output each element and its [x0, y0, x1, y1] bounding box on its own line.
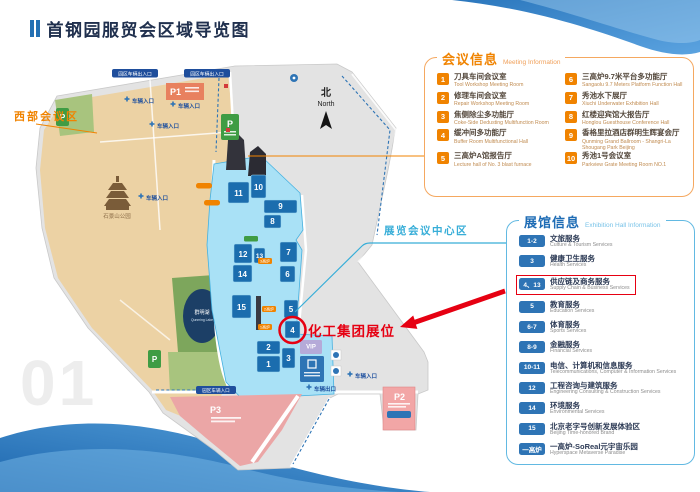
hall-item: 3健康卫生服务Health Services [519, 254, 686, 269]
furnace-2-badge: 2高炉 [264, 306, 274, 312]
meeting-item: 4缓冲间多功能厅Buffer Room Multifunctional Hall [437, 128, 557, 151]
parking-p3-label: P3 [210, 405, 221, 415]
hall-item-text: 健康卫生服务Health Services [550, 254, 595, 269]
meeting-item-en: Qunming Grand Ballroom - Shangri-La Shou… [582, 139, 685, 151]
parking-p2-label: P2 [394, 392, 405, 402]
hall-15: 15 [237, 303, 246, 312]
meeting-item-zh: 缓冲间多功能厅 [454, 128, 528, 137]
meeting-item-number: 7 [565, 92, 577, 104]
meeting-info-title-zh: 会议信息 [442, 49, 498, 68]
lake-label-zh: 群明湖 [194, 309, 209, 316]
hall-14: 14 [238, 270, 247, 279]
page-title: 首钢园服贸会区域导览图 [30, 16, 250, 41]
meeting-item-zh: 三高炉A馆报告厅 [454, 151, 532, 160]
hall-item-en: Telecommunications, Computer & Informati… [550, 370, 676, 376]
gate-inout-label: 园区车辆出入口 [118, 70, 152, 77]
meeting-item: 7秀池水下展厅Xiuchi Underwater Exhibition Hall [565, 91, 685, 110]
hall-item-badge: 4、13 [519, 278, 545, 290]
hall-item: 14环境服务Environmental Services [519, 401, 686, 416]
hall-item-text: 北京老字号创新发展体验区Beijing Time-honored Brand [550, 422, 640, 437]
parking-p1-label: P1 [170, 87, 181, 97]
vehicle-out-label: 车辆出口 [314, 385, 336, 393]
gate-in-label: 园区车辆入口 [202, 387, 230, 394]
hall-info-title: 展馆信息 Exhibition Hall Information [519, 212, 666, 231]
gate-inout-label: 园区车辆出入口 [190, 70, 224, 77]
hall-item-badge: 3 [519, 255, 545, 267]
hall-9: 9 [278, 202, 283, 211]
hall-10: 10 [254, 183, 263, 192]
meeting-item-text: 刀具车间会议室Tool Workshop Meeting Room [454, 72, 523, 89]
meeting-item: 8红楼迎宾馆大报告厅Honglou Guesthouse Conference … [565, 110, 685, 129]
parking-p-label: P [152, 355, 158, 364]
meeting-item-en: Coke-Side Dedusting Multifunction Room [454, 120, 549, 126]
meeting-item-zh: 香格里拉酒店群明生辉宴会厅 [582, 128, 685, 137]
meeting-item-en: Tool Workshop Meeting Room [454, 82, 523, 88]
meeting-item-number: 1 [437, 73, 449, 85]
vehicle-in-label: 车辆入口 [146, 194, 168, 202]
hall-item-text: 教育服务Education Services [550, 300, 594, 315]
hall-item: 6-7体育服务Sports Services [519, 320, 686, 335]
meeting-item-text: 三高炉A馆报告厅Lecture hall of No. 3 blast furn… [454, 151, 532, 168]
hall-item-en: Culture & Tourism Services [550, 243, 612, 249]
parking-p1-area: P1 [166, 83, 204, 100]
booth-annotation-arrow [400, 289, 506, 329]
park-label: 石景山公园 [103, 212, 131, 220]
booth-annotation-label: 化工集团展位 [308, 323, 395, 339]
hall-8: 8 [270, 217, 275, 226]
meeting-item-en: Honglou Guesthouse Conference Hall [582, 120, 669, 126]
hall-item-badge: 一高炉 [519, 443, 545, 455]
meeting-info-panel: 会议信息 Meeting Information 1刀具车间会议室Tool Wo… [424, 57, 694, 197]
vehicle-in-label: 车辆入口 [178, 102, 200, 110]
hall-item: 1-2文旅服务Culture & Tourism Services [519, 234, 686, 249]
meeting-item: 2修理车间会议室Repair Workshop Meeting Room [437, 91, 557, 110]
hall-2: 2 [266, 343, 271, 352]
meeting-item-text: 秀池水下展厅Xiuchi Underwater Exhibition Hall [582, 91, 659, 108]
compass-en: North [317, 101, 334, 108]
meeting-item-number: 10 [565, 152, 577, 164]
meeting-item: 5三高炉A馆报告厅Lecture hall of No. 3 blast fur… [437, 151, 557, 170]
hall-item-badge: 12 [519, 382, 545, 394]
media-center-box [300, 356, 324, 382]
hall-7: 7 [286, 248, 291, 257]
hall-item-badge: 5 [519, 301, 545, 313]
meeting-item-en: Lecture hall of No. 3 blast furnace [454, 162, 532, 168]
meeting-item-en: Repair Workshop Meeting Room [454, 101, 529, 107]
hall-item-text: 工程咨询与建筑服务Engineering Consulting & Constr… [550, 381, 660, 396]
vehicle-in-label: 车辆入口 [157, 122, 179, 130]
meeting-item: 9香格里拉酒店群明生辉宴会厅Qunming Grand Ballroom - S… [565, 128, 685, 151]
hall-item-text: 体育服务Sports Services [550, 320, 586, 335]
hall-3: 3 [286, 354, 291, 363]
hall-item-badge: 14 [519, 402, 545, 414]
vehicle-in-label: 车辆入口 [355, 372, 377, 380]
hall-5: 5 [289, 305, 294, 314]
hall-item: 5教育服务Education Services [519, 300, 686, 315]
hall-item-text: 电信、计算机和信息服务Telecommunications, Computer … [550, 361, 676, 376]
hall-item-highlighted: 4、13供应链及商务服务Supply Chain & Business Serv… [516, 275, 636, 295]
meeting-item: 1刀具车间会议室Tool Workshop Meeting Room [437, 72, 557, 91]
meeting-item-zh: 红楼迎宾馆大报告厅 [582, 110, 669, 119]
hall-item-en: Health Services [550, 263, 595, 269]
west-area-label: 西部会议区 [14, 109, 79, 123]
hall-item-badge: 8-9 [519, 341, 545, 353]
meeting-item-zh: 焦侧除尘多功能厅 [454, 110, 549, 119]
hall-item-en: Environmental Services [550, 410, 605, 416]
hall-12: 12 [239, 250, 248, 259]
hall-item-badge: 1-2 [519, 235, 545, 247]
hall-item-text: 金融服务Financial Services [550, 340, 592, 355]
hall-item-en: Education Services [550, 309, 594, 315]
hall-item-en: Engineering Consulting & Construction Se… [550, 390, 660, 396]
hall-item-en: Financial Services [550, 349, 592, 355]
meeting-item: 10秀池1号会议室Parkview Grate Meeting Room NO.… [565, 151, 685, 170]
meeting-item-text: 香格里拉酒店群明生辉宴会厅Qunming Grand Ballroom - Sh… [582, 128, 685, 151]
meeting-info-title-en: Meeting Information [503, 59, 560, 66]
hall-item-en: Beijing Time-honored Brand [550, 431, 640, 437]
meeting-item-en: Xiuchi Underwater Exhibition Hall [582, 101, 659, 107]
hall-6: 6 [285, 270, 290, 279]
center-area-label: 展览会议中心区 [384, 224, 468, 237]
meeting-item-text: 秀池1号会议室Parkview Grate Meeting Room NO.1 [582, 151, 666, 168]
hall-item-en: Supply Chain & Business Services [550, 286, 630, 292]
furnace-1-badge: 1高炉 [260, 324, 270, 330]
title-bars-icon [30, 20, 40, 37]
hall-4: 4 [290, 326, 295, 335]
hall-item: 一高炉一高炉-SoReal元宇宙乐园Hyperspace Metaverse P… [519, 442, 686, 457]
hall-info-panel: 展馆信息 Exhibition Hall Information 1-2文旅服务… [506, 220, 695, 465]
meeting-item-number: 3 [437, 111, 449, 123]
hall-vip-label: VIP [306, 345, 316, 351]
meeting-item-text: 红楼迎宾馆大报告厅Honglou Guesthouse Conference H… [582, 110, 669, 127]
meeting-item: 3焦侧除尘多功能厅Coke-Side Dedusting Multifuncti… [437, 110, 557, 129]
hall-item-text: 环境服务Environmental Services [550, 401, 605, 416]
hall-item-badge: 6-7 [519, 321, 545, 333]
meeting-item-zh: 三高炉9.7米平台多功能厅 [582, 72, 682, 81]
meeting-item-text: 修理车间会议室Repair Workshop Meeting Room [454, 91, 529, 108]
hall-item-text: 文旅服务Culture & Tourism Services [550, 234, 612, 249]
hall-item-badge: 10-11 [519, 362, 545, 374]
meeting-item-text: 缓冲间多功能厅Buffer Room Multifunctional Hall [454, 128, 528, 145]
meeting-item-en: Sangaolu 9.7 Meters Platform Function Ha… [582, 82, 682, 88]
parking-p-label: P [227, 119, 233, 129]
meeting-item-text: 焦侧除尘多功能厅Coke-Side Dedusting Multifunctio… [454, 110, 549, 127]
meeting-item-zh: 修理车间会议室 [454, 91, 529, 100]
compass-zh: 北 [321, 86, 331, 99]
hall-info-title-zh: 展馆信息 [524, 212, 580, 231]
meeting-item-number: 2 [437, 92, 449, 104]
furnace-3-badge: 3高炉 [260, 258, 270, 264]
hall-item: 10-11电信、计算机和信息服务Telecommunications, Comp… [519, 361, 686, 376]
hall-1: 1 [266, 360, 271, 369]
hall-item: 12工程咨询与建筑服务Engineering Consulting & Cons… [519, 381, 686, 396]
meeting-item-zh: 秀池1号会议室 [582, 151, 666, 160]
meeting-item-en: Parkview Grate Meeting Room NO.1 [582, 162, 666, 168]
meeting-info-items: 1刀具车间会议室Tool Workshop Meeting Room2修理车间会… [425, 58, 693, 176]
hall-item-text: 一高炉-SoReal元宇宙乐园Hyperspace Metaverse Para… [550, 442, 638, 457]
hall-item: 15北京老字号创新发展体验区Beijing Time-honored Brand [519, 422, 686, 437]
page-title-text: 首钢园服贸会区域导览图 [47, 16, 251, 41]
meeting-item-text: 三高炉9.7米平台多功能厅Sangaolu 9.7 Meters Platfor… [582, 72, 682, 89]
hall-info-title-en: Exhibition Hall Information [585, 222, 661, 229]
meeting-item-number: 5 [437, 152, 449, 164]
meeting-item-number: 8 [565, 111, 577, 123]
meeting-item-zh: 刀具车间会议室 [454, 72, 523, 81]
lake-label-en: Qunming Lake [191, 318, 213, 322]
hall-11: 11 [234, 189, 243, 198]
hall-info-items: 1-2文旅服务Culture & Tourism Services3健康卫生服务… [507, 221, 694, 464]
hall-item-en: Sports Services [550, 329, 586, 335]
meeting-item-number: 6 [565, 73, 577, 85]
hall-item-text: 供应链及商务服务Supply Chain & Business Services [550, 277, 630, 292]
hall-item-badge: 15 [519, 423, 545, 435]
meeting-info-title: 会议信息 Meeting Information [437, 49, 565, 68]
parking-p2-area: P2 [383, 387, 415, 430]
meeting-item-number: 4 [437, 129, 449, 141]
meeting-item-en: Buffer Room Multifunctional Hall [454, 139, 528, 145]
meeting-item-number: 9 [565, 129, 577, 141]
meeting-item: 6三高炉9.7米平台多功能厅Sangaolu 9.7 Meters Platfo… [565, 72, 685, 91]
hall-item: 8-9金融服务Financial Services [519, 340, 686, 355]
meeting-item-zh: 秀池水下展厅 [582, 91, 659, 100]
vehicle-in-label: 车辆入口 [132, 97, 154, 105]
hall-item-en: Hyperspace Metaverse Paradise [550, 451, 638, 457]
